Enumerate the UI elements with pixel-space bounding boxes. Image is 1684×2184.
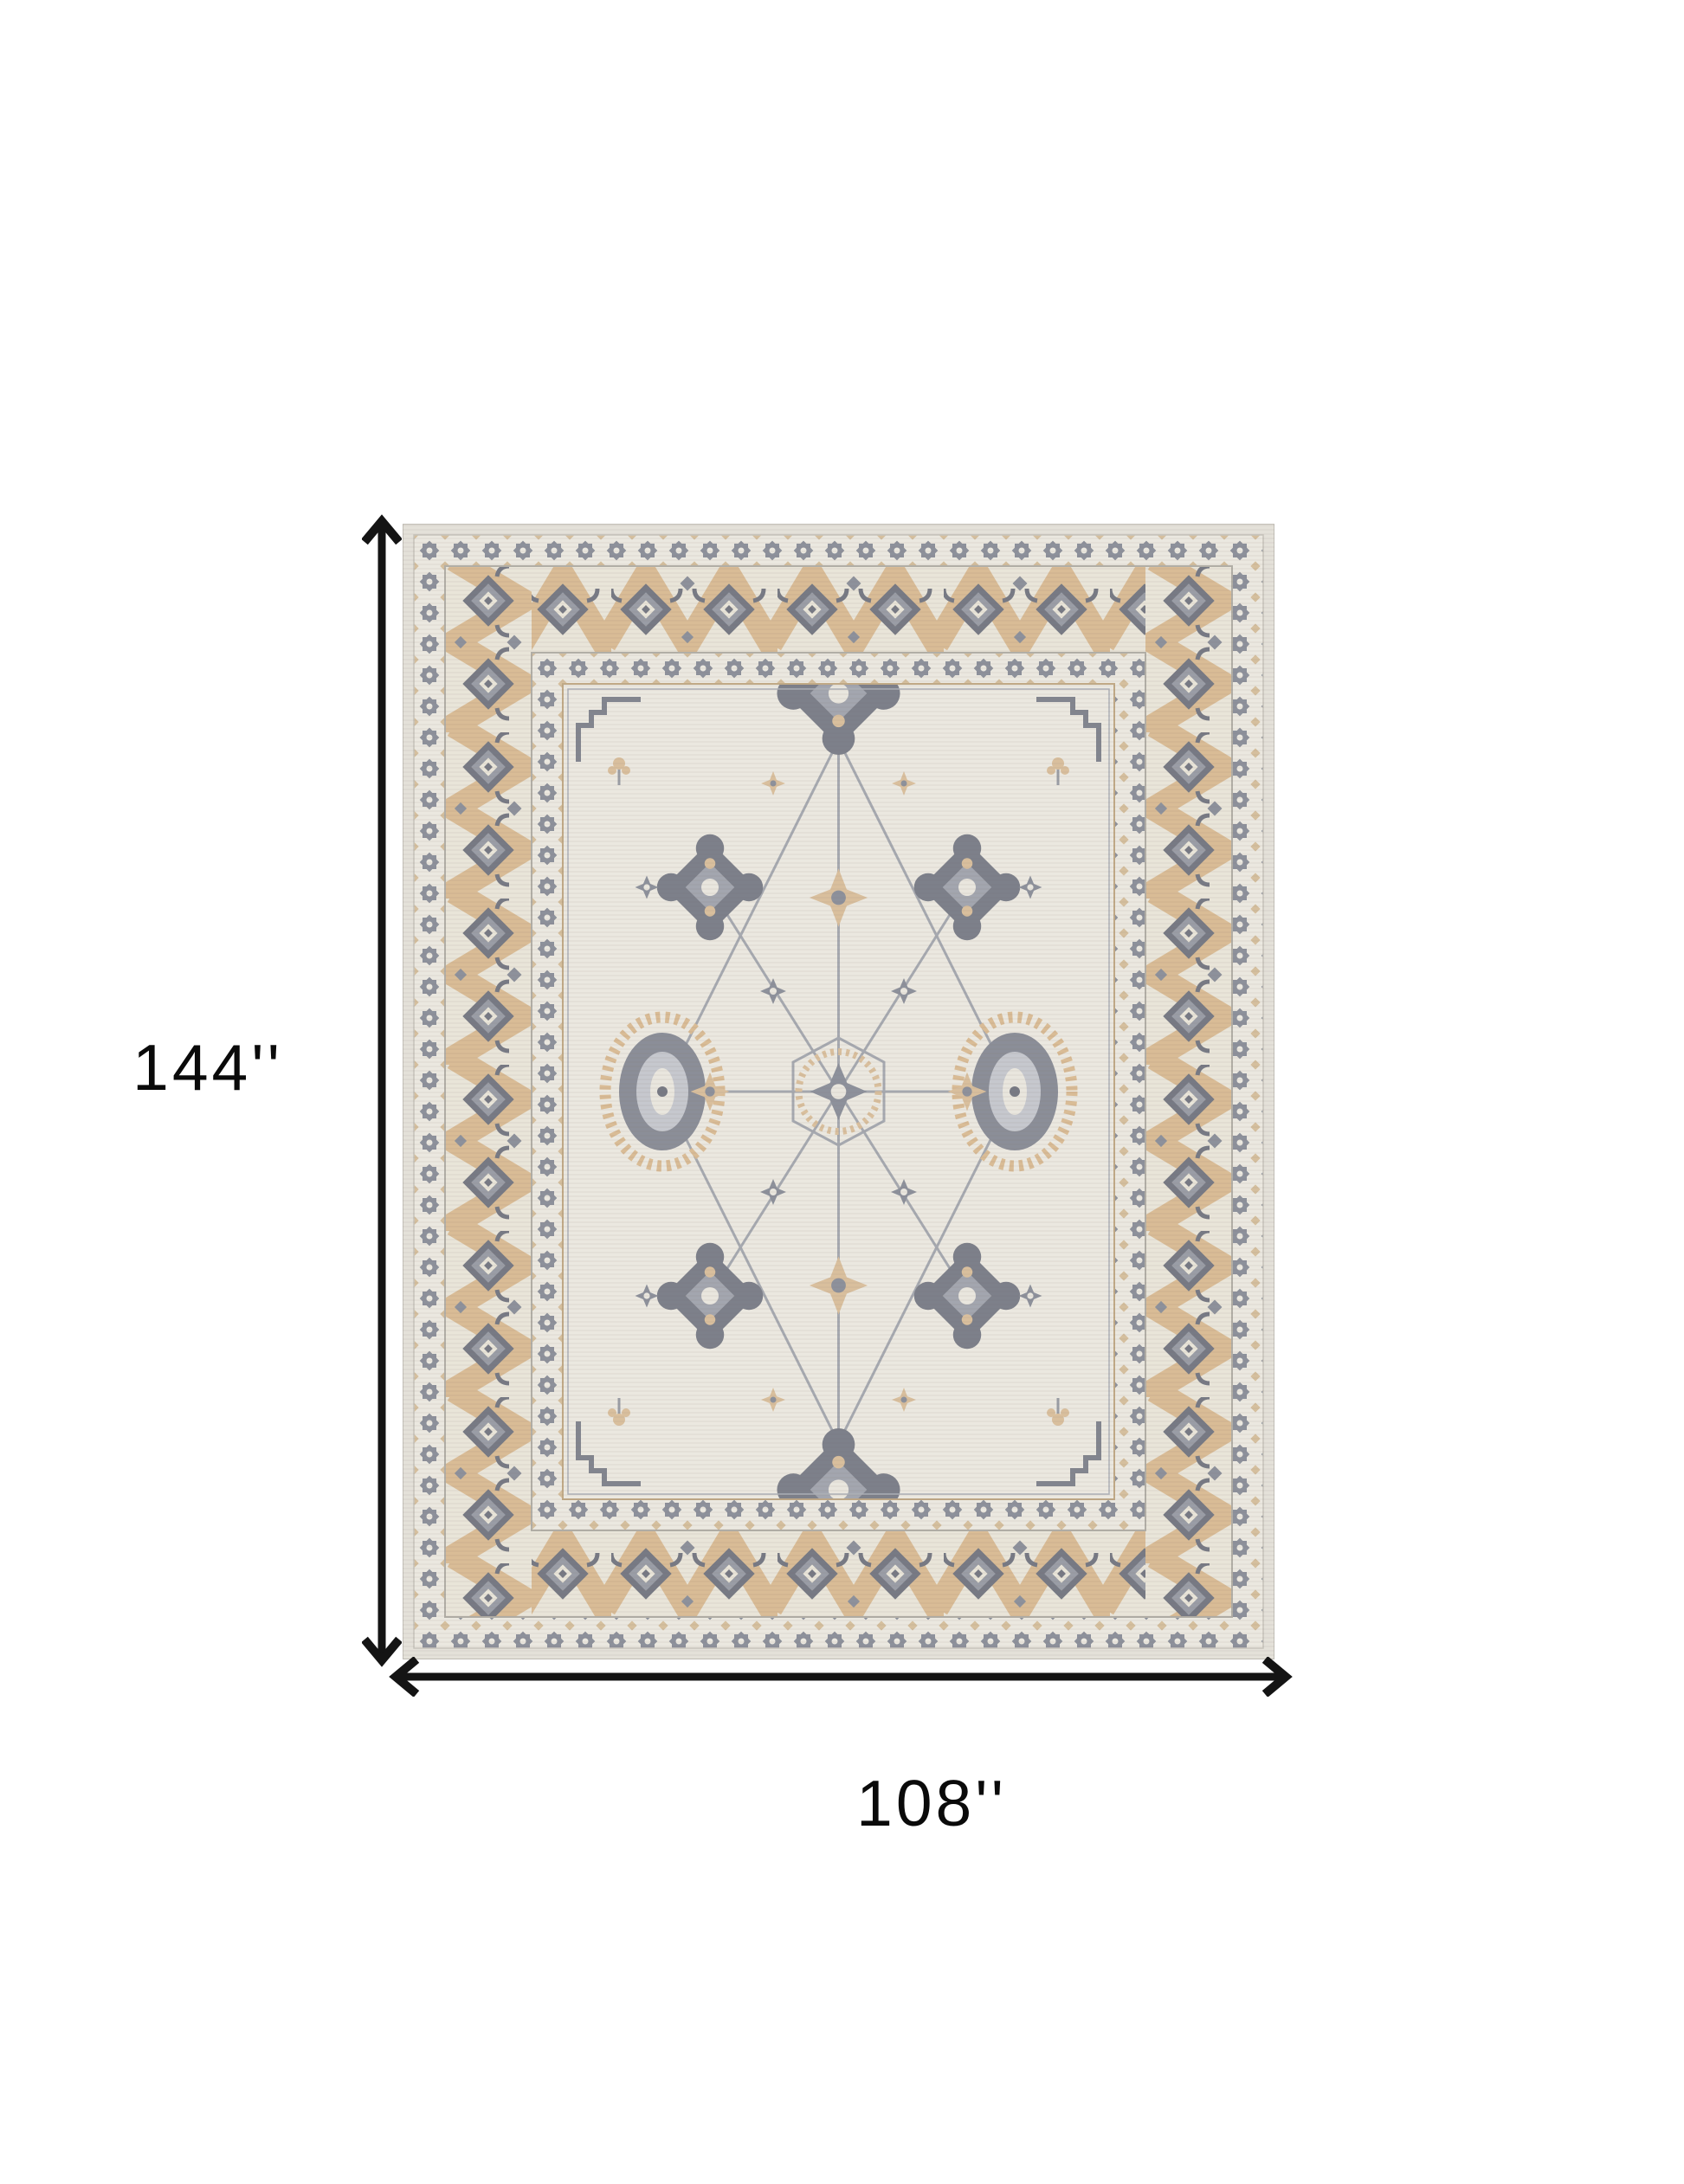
width-dimension-label: 108'' <box>836 1768 1027 1839</box>
product-dimension-diagram: 144'' 108'' <box>0 0 1684 2184</box>
rug-image <box>403 524 1274 1659</box>
width-dimension-arrow-icon <box>388 1657 1294 1697</box>
height-dimension-label: 144'' <box>113 1032 303 1104</box>
height-dimension-arrow-icon <box>362 513 402 1668</box>
rug-graphic <box>403 524 1274 1659</box>
